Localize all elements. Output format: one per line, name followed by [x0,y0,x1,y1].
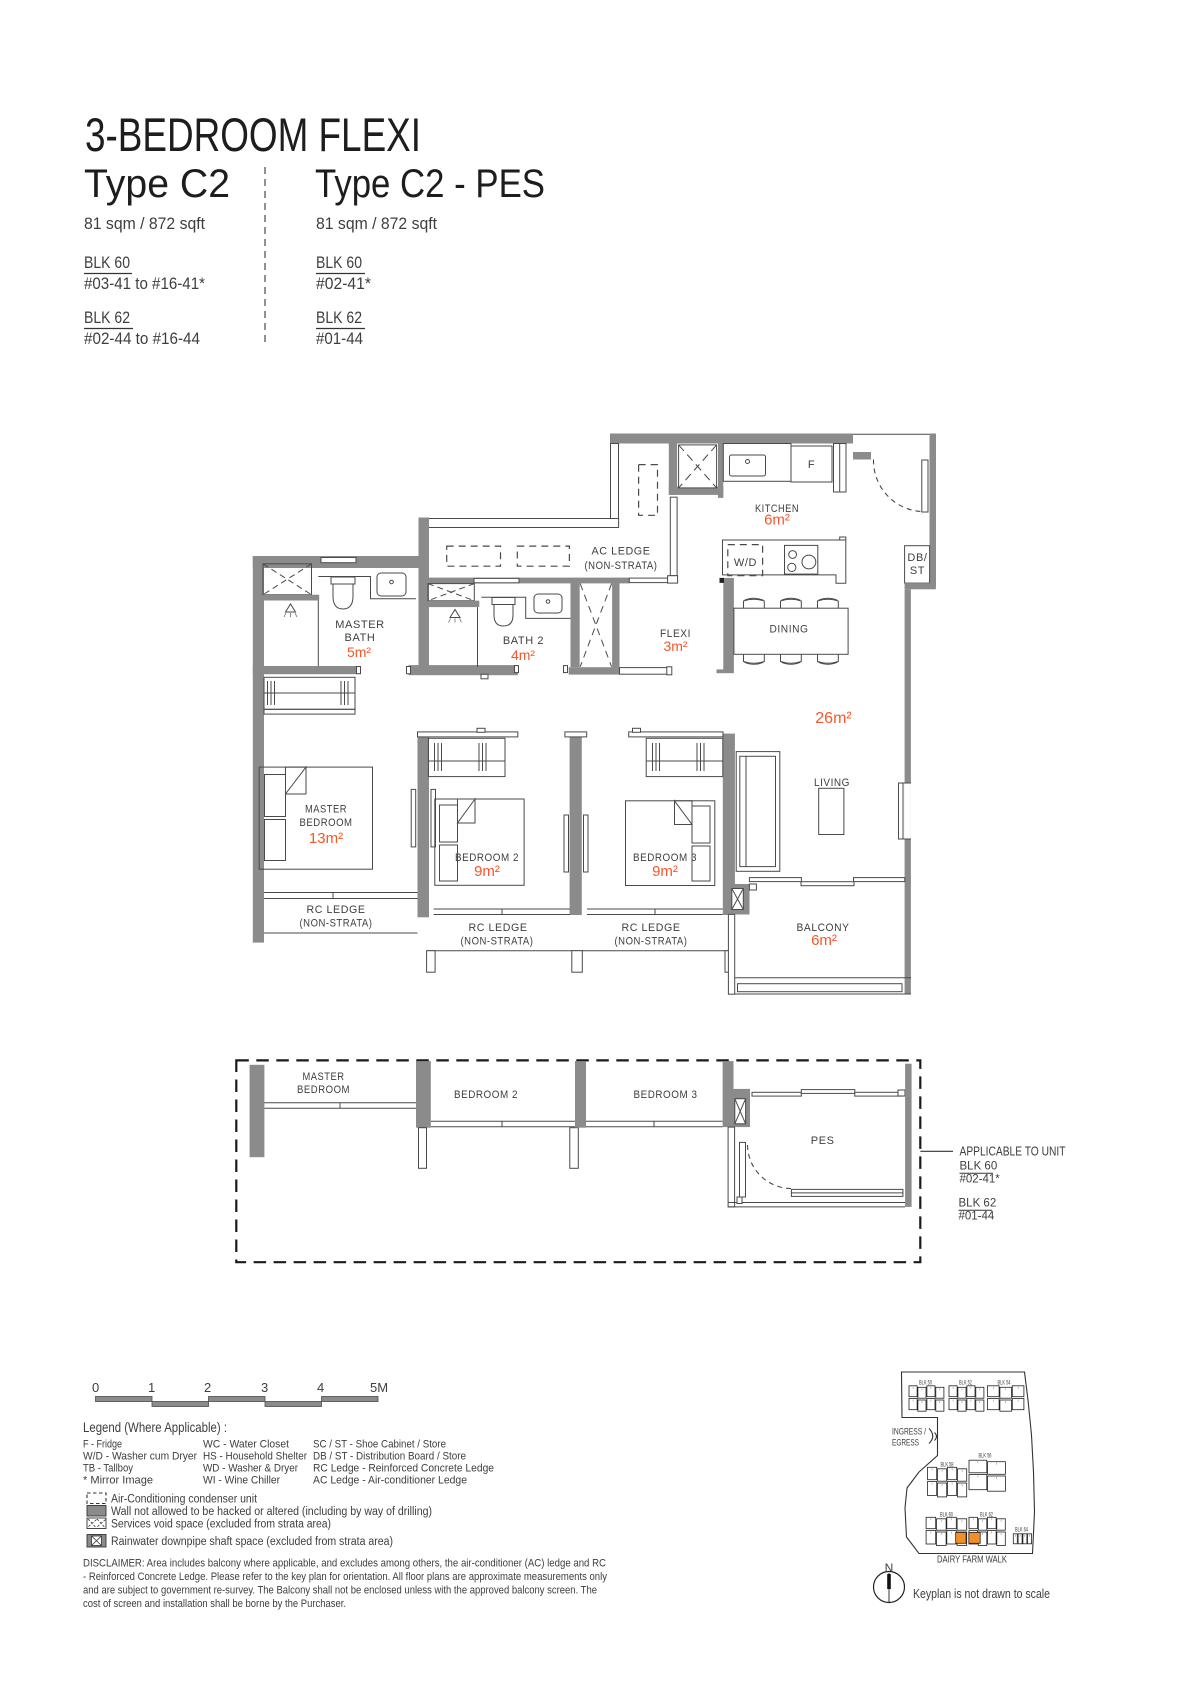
svg-text:MASTER: MASTER [335,619,384,631]
svg-text:4: 4 [317,1380,324,1395]
svg-text:0: 0 [92,1380,99,1395]
svg-text:#01-44: #01-44 [316,329,363,348]
svg-text:5M: 5M [370,1380,388,1395]
svg-text:BEDROOM 3: BEDROOM 3 [634,1089,698,1101]
svg-text:5m²: 5m² [347,644,371,660]
svg-text:Legend (Where Applicable) :: Legend (Where Applicable) : [83,1419,227,1435]
svg-text:13m²: 13m² [309,830,343,847]
svg-text:3m²: 3m² [663,638,687,654]
svg-text:BATH: BATH [345,632,376,644]
svg-text:4m²: 4m² [511,647,535,663]
svg-text:* Mirror Image: * Mirror Image [83,1475,153,1487]
svg-text:LIVING: LIVING [814,777,850,789]
svg-text:MASTER: MASTER [303,1071,345,1083]
svg-text:6m²: 6m² [764,512,790,529]
svg-text:#02-41*: #02-41* [960,1174,1001,1186]
svg-text:DAIRY FARM WALK: DAIRY FARM WALK [937,1555,1007,1566]
svg-text:BLK 60: BLK 60 [84,253,130,272]
svg-text:AC Ledge - Air-conditioner Led: AC Ledge - Air-conditioner Ledge [313,1475,467,1487]
svg-text:TB - Tallboy: TB - Tallboy [83,1463,133,1475]
svg-text:#01-44: #01-44 [959,1211,995,1223]
svg-text:HS - Household Shelter: HS - Household Shelter [203,1451,307,1463]
svg-text:(NON-STRATA): (NON-STRATA) [461,936,534,948]
svg-text:BLK 56: BLK 56 [979,1454,992,1460]
svg-text:F: F [808,459,815,471]
svg-text:#02-44 to #16-44: #02-44 to #16-44 [84,329,200,348]
svg-text:(NON-STRATA): (NON-STRATA) [300,918,373,930]
svg-text:RC LEDGE: RC LEDGE [307,904,366,916]
svg-text:WD - Washer & Dryer: WD - Washer & Dryer [203,1463,298,1475]
svg-text:26m²: 26m² [815,710,852,727]
svg-text:RC LEDGE: RC LEDGE [622,922,681,934]
svg-text:- Reinforced Concrete Ledge. P: - Reinforced Concrete Ledge. Please refe… [83,1571,607,1583]
svg-text:Rainwater downpipe shaft space: Rainwater downpipe shaft space (excluded… [111,1536,393,1548]
svg-text:WC - Water Closet: WC - Water Closet [203,1439,289,1451]
svg-text:3: 3 [261,1380,268,1395]
svg-text:SC / ST - Shoe Cabinet / Store: SC / ST - Shoe Cabinet / Store [313,1439,446,1451]
svg-text:RC LEDGE: RC LEDGE [469,922,528,934]
svg-text:DISCLAIMER: Area includes balc: DISCLAIMER: Area includes balcony where … [83,1558,606,1570]
svg-text:BLK 54: BLK 54 [998,1381,1011,1387]
svg-text:AC LEDGE: AC LEDGE [592,546,651,558]
svg-text:N: N [885,1561,894,1575]
svg-text:EGRESS: EGRESS [892,1438,919,1448]
svg-text:9m²: 9m² [474,863,500,880]
svg-text:BLK 62: BLK 62 [959,1198,997,1210]
svg-text:DB/: DB/ [907,552,927,564]
svg-text:Wall not allowed to be hacked: Wall not allowed to be hacked or altered… [111,1506,432,1518]
svg-text:BEDROOM 2: BEDROOM 2 [454,1089,518,1101]
svg-text:DB / ST - Distribution Board /: DB / ST - Distribution Board / Store [313,1451,466,1463]
svg-text:1: 1 [148,1380,155,1395]
svg-text:INGRESS /: INGRESS / [892,1427,926,1437]
svg-text:Services void space (excluded: Services void space (excluded from strat… [111,1519,331,1531]
svg-text:APPLICABLE TO UNIT: APPLICABLE TO UNIT [960,1145,1066,1159]
svg-text:2: 2 [204,1380,211,1395]
svg-text:RC Ledge - Reinforced Concrete: RC Ledge - Reinforced Concrete Ledge [313,1463,494,1475]
svg-text:BLK 62: BLK 62 [316,308,362,327]
svg-text:MASTER: MASTER [305,804,347,816]
svg-text:BEDROOM: BEDROOM [300,817,353,829]
svg-text:BLK 62: BLK 62 [84,308,130,327]
svg-text:BLK 60: BLK 60 [960,1161,998,1173]
svg-text:cost of screen and installatio: cost of screen and installation shall be… [83,1598,346,1610]
svg-text:F - Fridge: F - Fridge [83,1439,122,1451]
svg-text:ST: ST [910,565,925,577]
svg-text:81 sqm / 872 sqft: 81 sqm / 872 sqft [316,214,437,233]
svg-text:BEDROOM: BEDROOM [297,1084,350,1096]
svg-text:81 sqm / 872 sqft: 81 sqm / 872 sqft [84,214,205,233]
svg-text:DINING: DINING [770,624,809,636]
svg-text:W/D - Washer cum Dryer: W/D - Washer cum Dryer [83,1451,197,1463]
svg-text:9m²: 9m² [652,863,678,880]
svg-text:Type C2 - PES: Type C2 - PES [315,162,545,206]
svg-text:W/D: W/D [734,557,757,569]
svg-text:BATH 2: BATH 2 [503,635,544,647]
svg-text:(NON-STRATA): (NON-STRATA) [615,936,688,948]
svg-text:(NON-STRATA): (NON-STRATA) [585,560,658,572]
svg-text:Keyplan is not drawn to scale: Keyplan is not drawn to scale [913,1587,1050,1601]
svg-text:Type C2: Type C2 [84,162,230,206]
svg-text:and are subject to government: and are subject to government re-survey.… [83,1585,597,1597]
svg-text:WI - Wine Chiller: WI - Wine Chiller [203,1475,280,1487]
svg-text:BLK 60: BLK 60 [316,253,362,272]
svg-text:#02-41*: #02-41* [316,274,371,293]
svg-text:3-BEDROOM FLEXI: 3-BEDROOM FLEXI [85,108,421,161]
svg-text:6m²: 6m² [811,932,837,949]
svg-text:PES: PES [811,1135,835,1147]
svg-text:BLK 64: BLK 64 [1015,1527,1028,1533]
svg-text:Air-Conditioning condenser uni: Air-Conditioning condenser unit [111,1494,258,1506]
svg-text:#03-41 to #16-41*: #03-41 to #16-41* [84,274,205,293]
